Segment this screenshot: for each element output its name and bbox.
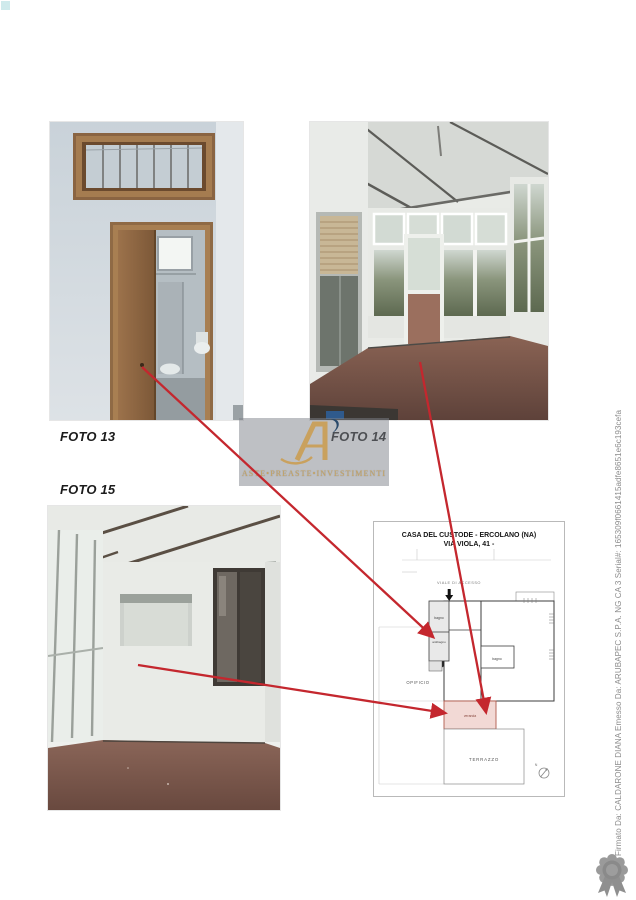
right-window	[213, 568, 265, 686]
building-outline	[444, 592, 554, 701]
photo-foto15-image	[48, 506, 280, 810]
plan-label-access: VIALE DI ACCESSO	[437, 580, 481, 585]
room-bagno-wing	[429, 601, 449, 671]
agency-watermark: ASTE•PREASTE•INVESTIMENTI	[239, 418, 389, 486]
transom-window	[73, 133, 215, 200]
entry-arrow-down-icon	[445, 589, 453, 601]
plan-title-line1: CASA DEL CUSTODE - ERCOLANO (NA)	[402, 532, 536, 539]
plan-label-terrazzo: TERRAZZO	[469, 757, 499, 762]
report-page: FOTO 13 FOTO 14 FOTO 15 ASTE•PREASTE•INV…	[0, 0, 636, 900]
sliding-door-shutter	[310, 122, 368, 387]
plan-label-north: N	[535, 763, 538, 767]
agency-logo-icon	[239, 418, 389, 468]
north-compass-icon: N	[535, 763, 549, 778]
right-windows	[510, 177, 548, 352]
veranda-floor	[48, 740, 280, 810]
caption-foto15: FOTO 15	[60, 482, 115, 497]
photo-foto14-image	[310, 122, 548, 420]
photo-foto13	[50, 122, 243, 420]
photo-foto13-image	[50, 122, 243, 420]
caption-foto13: FOTO 13	[60, 429, 115, 444]
door-handle	[140, 363, 144, 367]
rear-glazed-door	[404, 234, 444, 348]
plan-title-line2: VIA VIOLA, 41 -	[444, 541, 495, 548]
agency-brand-text: ASTE•PREASTE•INVESTIMENTI	[242, 469, 386, 478]
scan-artifact	[1, 1, 10, 10]
bathroom-doorway	[110, 222, 213, 420]
photo-foto14	[310, 122, 548, 420]
plan-label-opificio: OPIFICIO	[406, 680, 429, 685]
certificate-seal-icon	[594, 852, 630, 898]
photo-foto15	[48, 506, 280, 810]
floor-plan: CASA DEL CUSTODE - ERCOLANO (NA) VIA VIO…	[373, 521, 565, 797]
left-windows	[48, 530, 103, 742]
plan-label-veranda: veranda	[464, 714, 476, 718]
plan-label-antibagno: antibagno	[432, 640, 446, 644]
signature-text: Firmato Da: CALDARONE DIANA Emesso Da: A…	[614, 410, 623, 856]
plan-label-bagno-upper: bagno	[434, 616, 444, 620]
plan-label-bagno-right: bagno	[492, 657, 502, 661]
